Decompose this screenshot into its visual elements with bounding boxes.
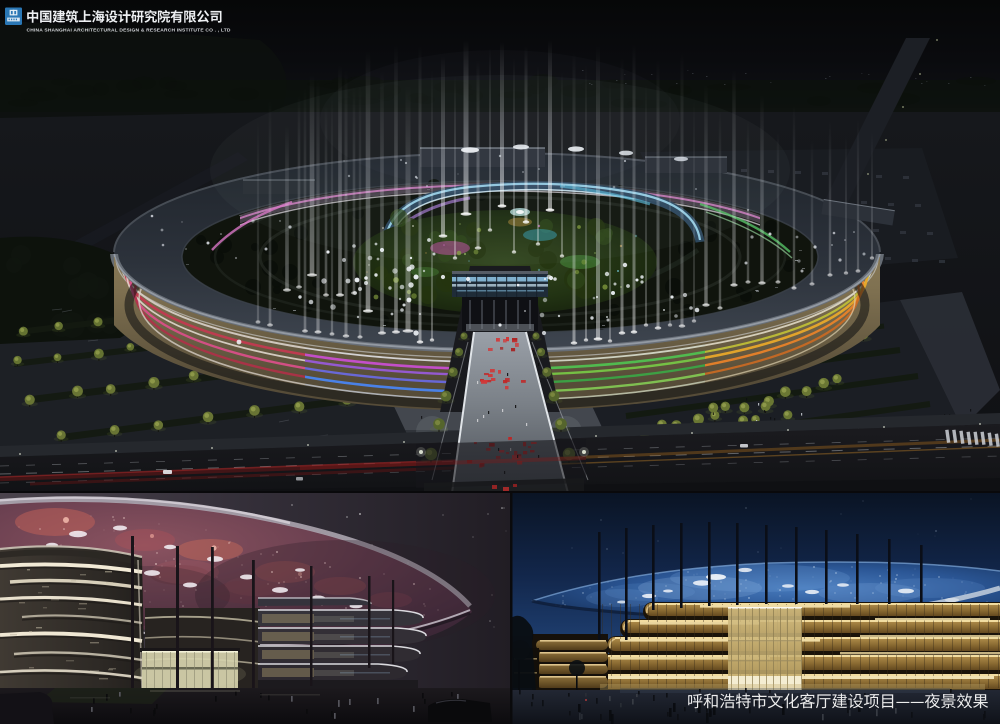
svg-text:CHINA SHANGHAI ARCHITECTURAL D: CHINA SHANGHAI ARCHITECTURAL DESIGN & RE… [27, 27, 231, 33]
